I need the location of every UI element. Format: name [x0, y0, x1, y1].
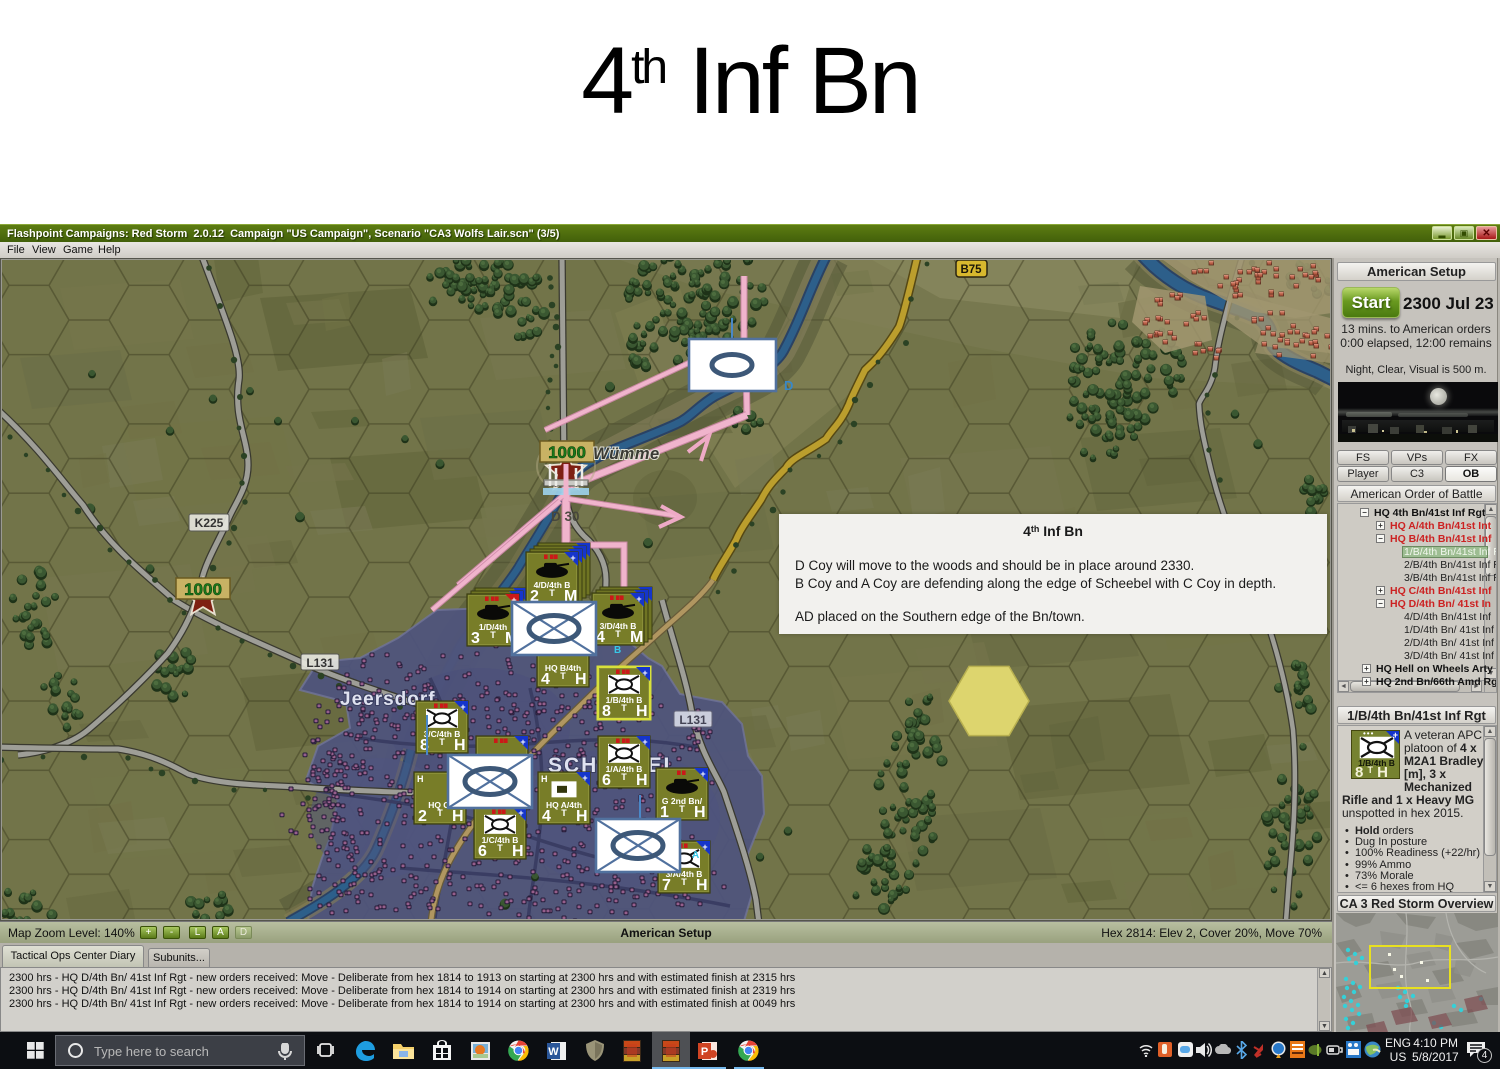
svg-text:H: H — [636, 703, 648, 720]
svg-text:3: 3 — [471, 630, 480, 647]
svg-text:+: + — [460, 702, 465, 712]
svg-text:+: + — [642, 737, 647, 747]
svg-text:8: 8 — [602, 703, 611, 720]
svg-text:P: P — [701, 1046, 708, 1058]
svg-text:M: M — [630, 629, 643, 646]
svg-text:H: H — [452, 808, 464, 825]
svg-text:4: 4 — [542, 808, 551, 825]
svg-text:B: B — [614, 645, 621, 656]
svg-text:+: + — [570, 553, 575, 563]
svg-text:B75: B75 — [960, 264, 982, 276]
svg-text:+: + — [642, 668, 647, 678]
svg-text:Wümme: Wümme — [593, 445, 660, 463]
svg-text:L131: L131 — [306, 656, 334, 670]
svg-text:A: A — [692, 850, 699, 861]
svg-text:7: 7 — [662, 877, 671, 894]
svg-text:L131: L131 — [679, 713, 707, 727]
svg-text:+: + — [636, 594, 641, 604]
svg-text:6: 6 — [478, 843, 487, 860]
svg-text:4: 4 — [541, 671, 550, 688]
svg-text:W: W — [548, 1046, 559, 1058]
svg-text:T: T — [439, 737, 445, 747]
svg-text:T: T — [497, 843, 503, 853]
svg-text:T: T — [561, 808, 567, 818]
svg-text:1000: 1000 — [548, 443, 586, 462]
svg-text:D 30: D 30 — [551, 509, 580, 524]
svg-text:2: 2 — [418, 808, 427, 825]
svg-text:H: H — [512, 843, 524, 860]
svg-text:+: + — [520, 737, 525, 747]
svg-text:T: T — [681, 877, 687, 887]
svg-text:6: 6 — [602, 772, 611, 789]
svg-text:T: T — [560, 671, 566, 681]
svg-text:+: + — [518, 808, 523, 818]
svg-text:H: H — [636, 772, 648, 789]
svg-text:T: T — [679, 804, 685, 814]
svg-text:T: T — [490, 630, 496, 640]
svg-text:+: + — [702, 842, 707, 852]
svg-text:H: H — [541, 774, 548, 784]
svg-text:T: T — [621, 703, 627, 713]
svg-text:1000: 1000 — [184, 580, 222, 599]
svg-text:+: + — [700, 769, 705, 779]
svg-text:T: T — [437, 808, 443, 818]
svg-text:H: H — [576, 808, 588, 825]
svg-text:H: H — [417, 774, 424, 784]
svg-text:K225: K225 — [195, 516, 224, 530]
svg-text:H: H — [575, 671, 587, 688]
svg-text:T: T — [621, 772, 627, 782]
svg-text:H: H — [694, 804, 706, 821]
svg-text:D: D — [784, 378, 793, 393]
svg-text:T: T — [549, 588, 555, 598]
svg-text:H: H — [696, 877, 708, 894]
svg-text:+: + — [582, 773, 587, 783]
svg-text:H: H — [454, 737, 466, 754]
svg-text:T: T — [615, 629, 621, 639]
svg-text:4: 4 — [596, 629, 605, 646]
